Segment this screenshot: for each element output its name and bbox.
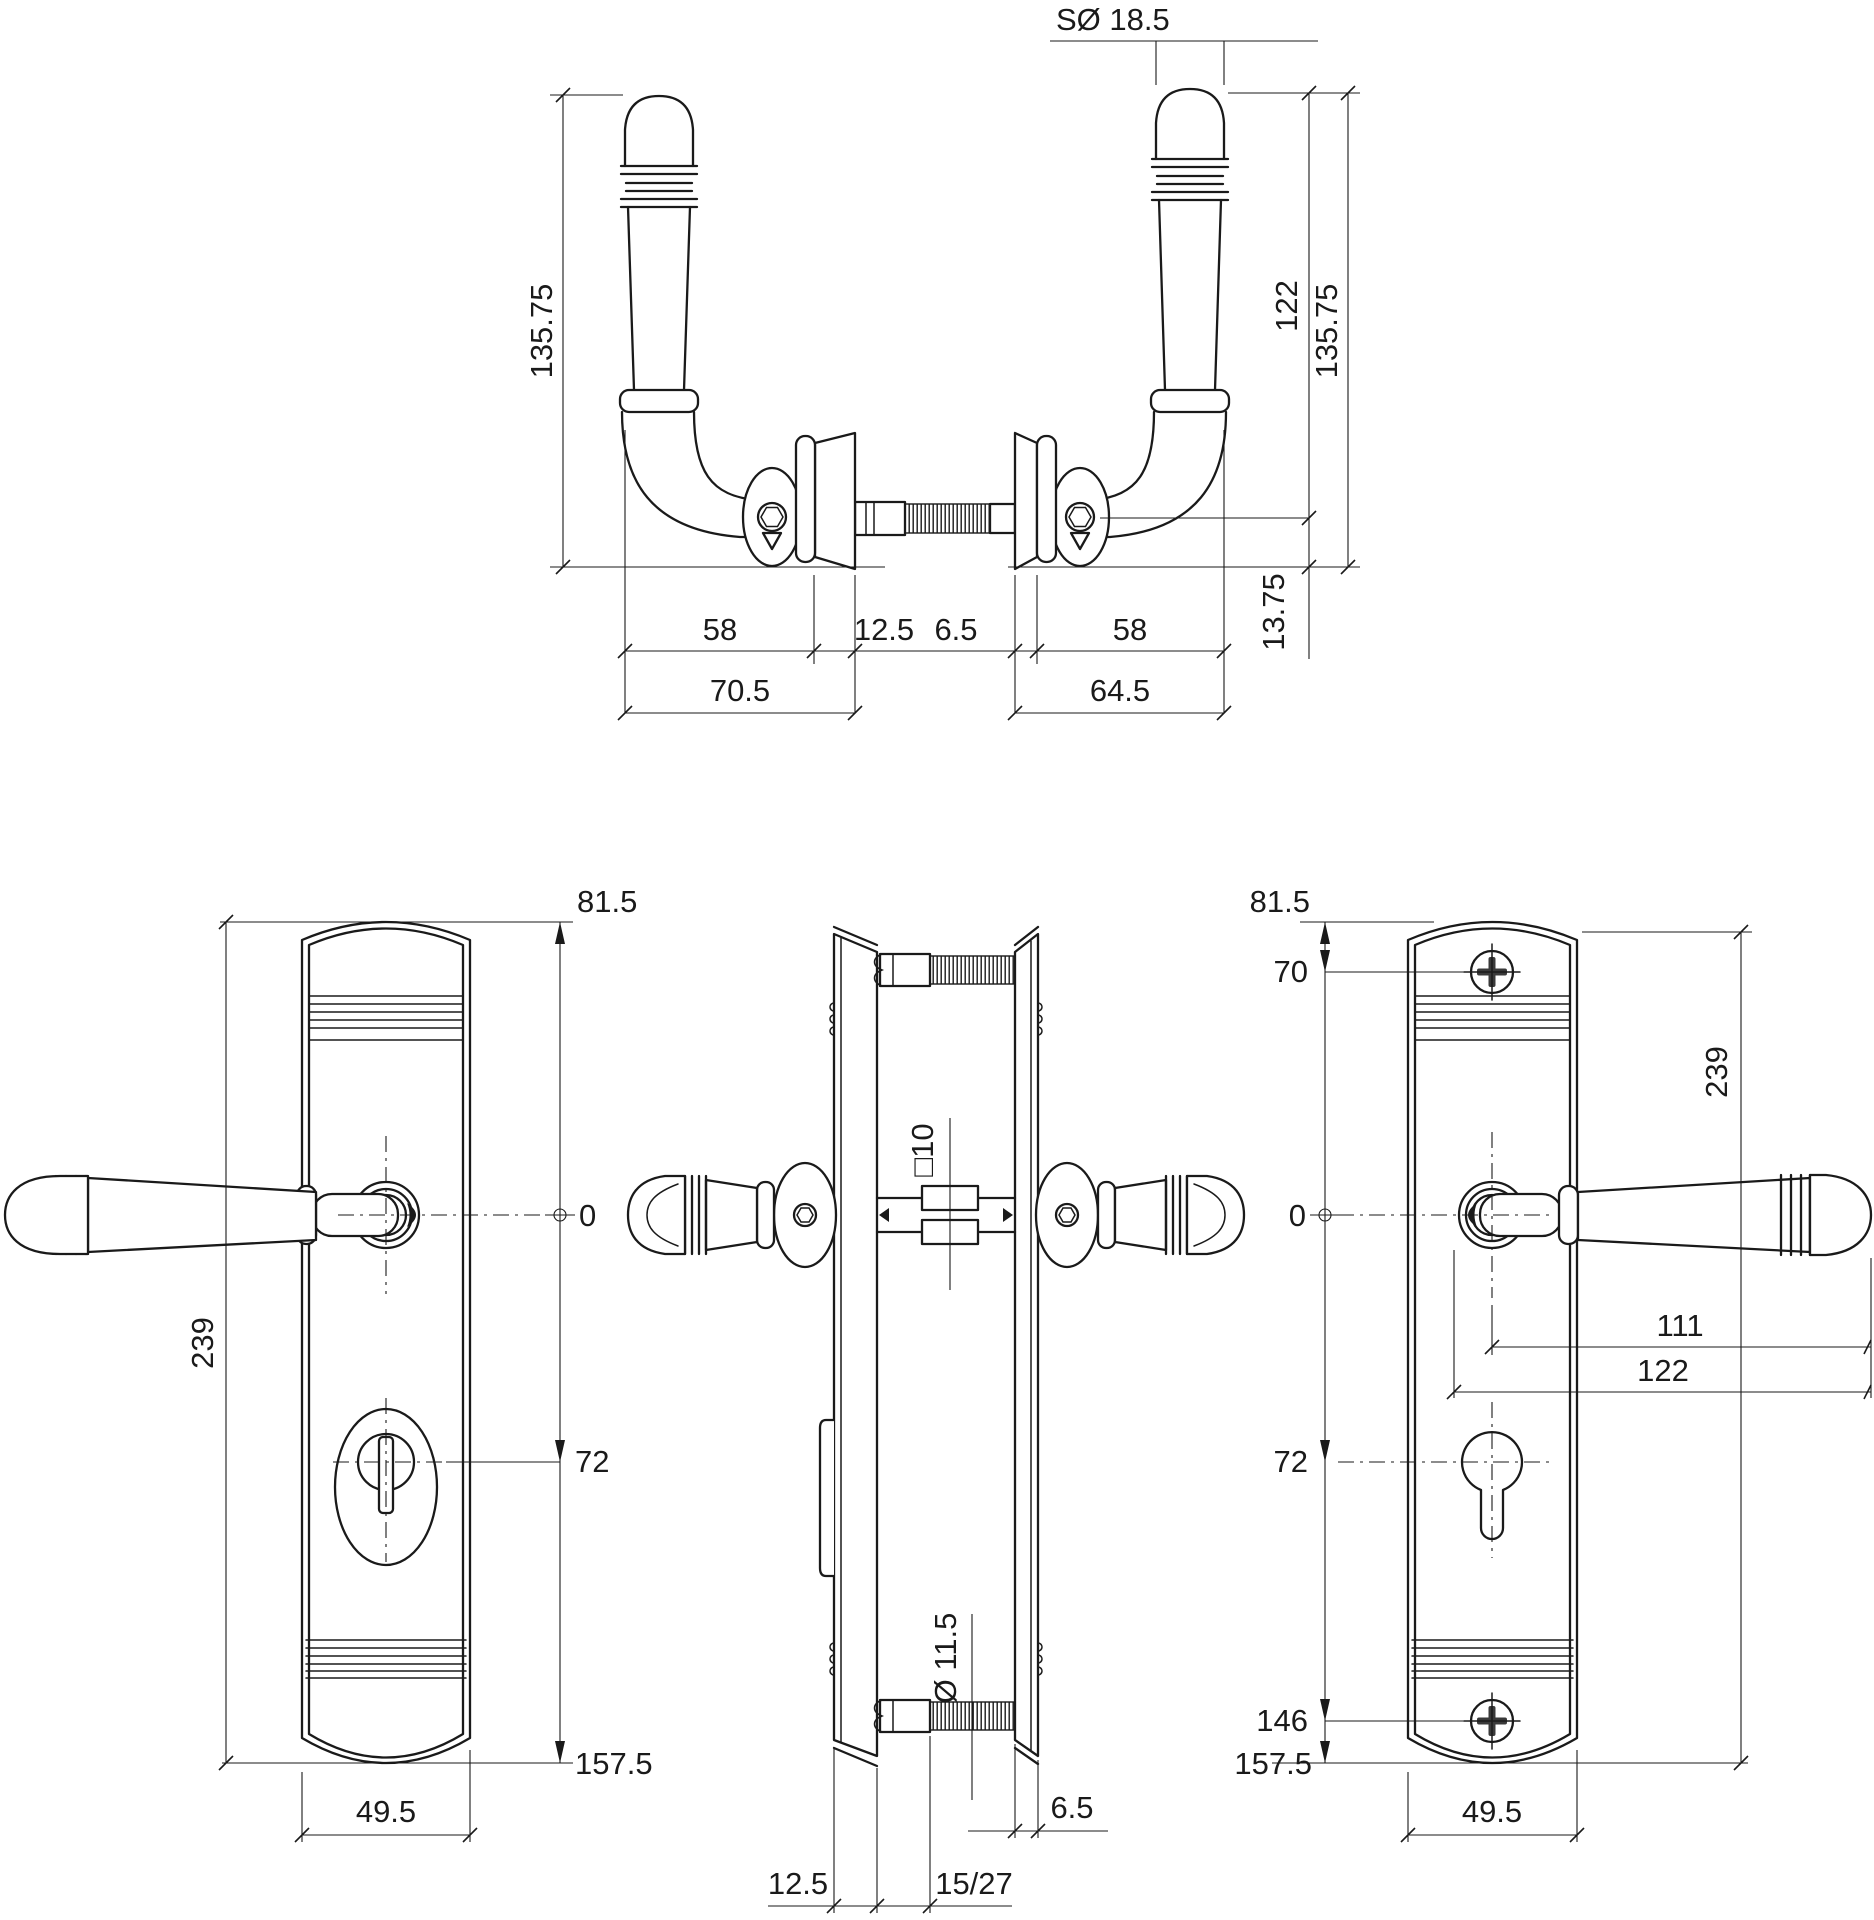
top-view-handle-pair: SØ 18.5 135.75 122 13.75 135.75 [524, 2, 1360, 720]
dim-top-to-axis: 81.5 [1250, 884, 1310, 919]
dim-axis-to-cylinder: 72 [575, 1444, 609, 1479]
outside-plate-view: 81.5 70 0 72 146 157.5 239 111 122 [1234, 884, 1871, 1842]
right-grip-collar [1151, 390, 1229, 412]
dim-axis-base: 13.75 [1256, 573, 1291, 651]
spindle-end [990, 504, 1015, 533]
dim-grip-left: 58 [703, 612, 737, 647]
inside-plate-view: 81.5 0 72 157.5 239 49.5 [5, 884, 653, 1842]
dim-rose-thickness: 12.5 [854, 612, 914, 647]
handle-grip [1578, 1178, 1810, 1252]
dim-right-total-height: 135.75 [1309, 284, 1344, 379]
dim-right-axis-height: 122 [1269, 280, 1304, 332]
technical-drawing: SØ 18.5 135.75 122 13.75 135.75 [0, 0, 1874, 1920]
dim-screw-diameter: Ø 11.5 [928, 1613, 963, 1704]
dim-spindle-length: 15/27 [935, 1866, 1013, 1901]
dim-plate-width: 49.5 [356, 1794, 416, 1829]
side-right-handle [1036, 1163, 1244, 1267]
dim-axis-to-screw: 146 [1256, 1703, 1308, 1738]
spindle-side: □10 [877, 1118, 1015, 1290]
top-view-dimensions: SØ 18.5 135.75 122 13.75 135.75 [524, 2, 1360, 720]
right-rose-body [1015, 433, 1037, 569]
right-grip-cap [1156, 89, 1224, 159]
spindle-thread [905, 504, 990, 533]
dim-plate-height: 239 [185, 1317, 220, 1369]
side-view-dimensions: Ø 11.5 6.5 12.5 15/27 [768, 1613, 1108, 1913]
dim-axis-to-grip-end: 111 [1656, 1308, 1703, 1343]
dim-axis-to-cylinder: 72 [1274, 1444, 1308, 1479]
plate-outer [302, 922, 470, 1763]
dim-plate-left-thickness: 12.5 [768, 1866, 828, 1901]
dim-rose-to-grip-end: 122 [1637, 1353, 1689, 1388]
left-grip-cap [625, 96, 693, 166]
top-connecting-screw [875, 954, 1016, 986]
dim-left-total-height: 135.75 [524, 284, 559, 379]
front-left-handle [620, 96, 855, 569]
dim-axis-to-bottom: 157.5 [575, 1746, 653, 1781]
side-profile-view: □10 Ø 11.5 [628, 927, 1244, 1913]
handle-grip [88, 1178, 316, 1252]
dim-plate-height: 239 [1699, 1046, 1734, 1098]
handle-cap [1810, 1175, 1871, 1255]
dim-washer-thickness: 6.5 [934, 612, 977, 647]
dim-zero-marker: 0 [1289, 1198, 1306, 1233]
front-right-handle [1015, 89, 1229, 569]
bottom-connecting-screw [875, 1700, 1016, 1732]
dim-plate-width: 49.5 [1462, 1794, 1522, 1829]
side-plate-right [1015, 934, 1038, 1756]
spindle-assembly [855, 502, 1015, 535]
dim-spindle-square: □10 [905, 1123, 940, 1176]
dim-screw-to-top: 70 [1274, 954, 1308, 989]
dim-axis-to-bottom: 157.5 [1234, 1746, 1312, 1781]
spindle-shank [855, 502, 905, 535]
handle-collar [1559, 1186, 1578, 1244]
drawing-canvas: SØ 18.5 135.75 122 13.75 135.75 [0, 0, 1874, 1920]
cylinder-protrusion [820, 1420, 834, 1576]
left-rose-rim [796, 436, 815, 562]
left-grip-collar [620, 390, 698, 412]
right-rose-rim [1037, 436, 1056, 562]
handle-cap [5, 1176, 88, 1254]
dim-proj-left: 70.5 [710, 673, 770, 708]
handle-neck [312, 1194, 398, 1236]
dim-plate-right-thickness: 6.5 [1050, 1790, 1093, 1825]
side-left-handle [628, 1163, 836, 1267]
dim-proj-right: 64.5 [1090, 673, 1150, 708]
dim-grip-right: 58 [1113, 612, 1147, 647]
dim-zero-marker: 0 [579, 1198, 596, 1233]
dim-top-to-axis: 81.5 [577, 884, 637, 919]
left-rose-body [815, 433, 855, 569]
dim-sphere-dia: SØ 18.5 [1056, 2, 1170, 37]
